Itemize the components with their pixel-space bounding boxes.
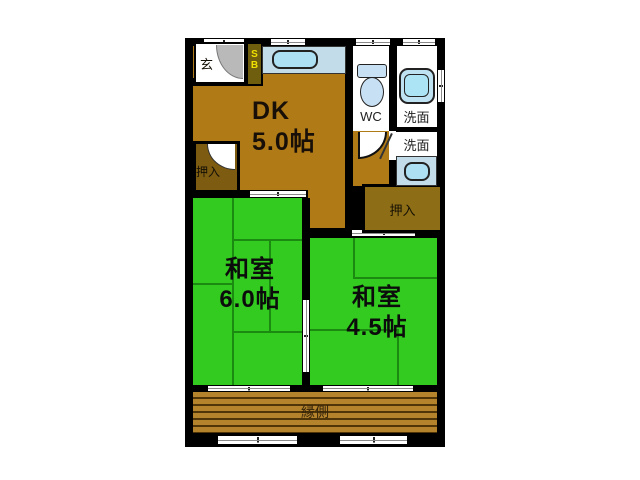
toilet-bowl-icon <box>360 77 384 107</box>
tatami-line <box>353 277 437 279</box>
closet-left-label: 押入 <box>196 163 220 180</box>
kitchen-sink-icon <box>272 50 318 69</box>
toilet-tank-icon <box>357 64 387 78</box>
tatami-line <box>353 238 355 279</box>
washbasin-icon <box>404 162 430 181</box>
bath-window <box>403 39 435 45</box>
bathtub-inner-icon <box>404 74 429 97</box>
wc-window <box>356 39 390 45</box>
kitchen-window <box>271 39 305 45</box>
tatami-line <box>232 331 302 333</box>
washroom-upper-label: 洗面 <box>396 107 437 126</box>
wall-bath-divider <box>396 127 437 132</box>
dk-washitsu6-sliding-door <box>250 191 306 197</box>
engawa-label: 縁側 <box>193 402 437 422</box>
engawa-window-left <box>218 436 297 444</box>
washitsu-6-label: 和室6.0帖 <box>195 255 305 315</box>
entrance-label: 玄 <box>200 54 213 73</box>
washitsu-45-label: 和室4.5帖 <box>315 283 439 343</box>
floor-plan: 玄 S B WC 洗面 洗面 押入 押入 DK5.0帖 和室6.0帖 和室4.5… <box>0 0 640 480</box>
wc-label: WC <box>353 109 389 124</box>
washitsu6-engawa-door <box>208 386 290 391</box>
closet-right-label: 押入 <box>362 200 443 219</box>
washroom-lower-label: 洗面 <box>396 135 437 154</box>
dk-label: DK5.0帖 <box>252 96 316 158</box>
wall-left <box>185 38 193 447</box>
engawa-window-right <box>340 436 407 444</box>
shoe-box-label: S B <box>247 49 262 71</box>
washitsu45-engawa-door <box>323 386 413 391</box>
bath-side-window <box>438 70 444 102</box>
tatami-line <box>232 239 302 241</box>
